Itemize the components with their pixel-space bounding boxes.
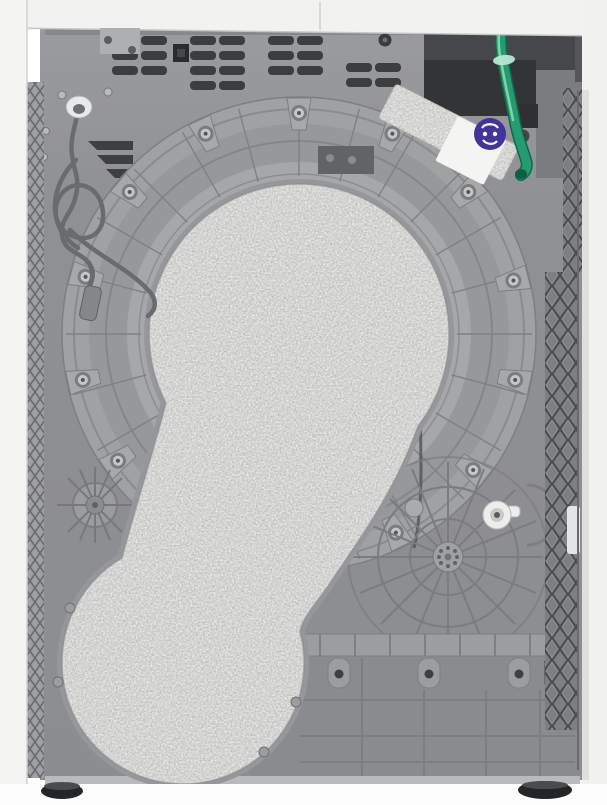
boss-dot bbox=[405, 499, 423, 517]
side-trim-left bbox=[27, 82, 44, 778]
cable-grommet bbox=[66, 96, 92, 118]
panel-screw-center bbox=[383, 38, 388, 43]
appliance-photo: Rear view of a white freestanding tumble… bbox=[0, 0, 607, 805]
drum-top-recess bbox=[318, 146, 374, 174]
panel-stud-inner bbox=[177, 49, 185, 57]
warning-sticker bbox=[474, 118, 506, 150]
idler-wheel bbox=[57, 467, 133, 543]
